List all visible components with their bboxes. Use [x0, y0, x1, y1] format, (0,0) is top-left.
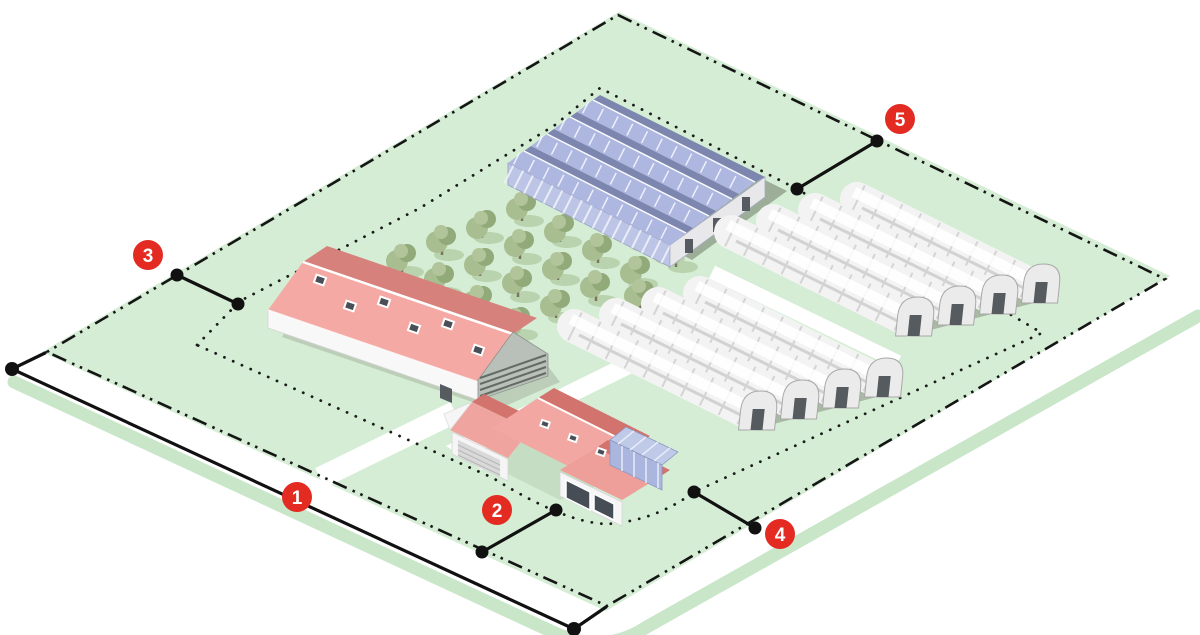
marker-5[interactable]: 5: [885, 104, 915, 134]
marker-1-number: 1: [292, 488, 303, 509]
marker-2[interactable]: 2: [482, 495, 512, 525]
farm-site-plan-illustration: 1 2 3 4 5: [0, 0, 1200, 635]
marker-3[interactable]: 3: [133, 240, 163, 270]
site-plan-canvas: 1 2 3 4 5: [0, 0, 1200, 635]
marker-4-number: 4: [775, 525, 786, 546]
marker-5-number: 5: [895, 110, 906, 131]
marker-3-number: 3: [143, 246, 154, 267]
marker-1[interactable]: 1: [282, 482, 312, 512]
marker-4[interactable]: 4: [765, 519, 795, 549]
marker-2-number: 2: [492, 501, 503, 522]
